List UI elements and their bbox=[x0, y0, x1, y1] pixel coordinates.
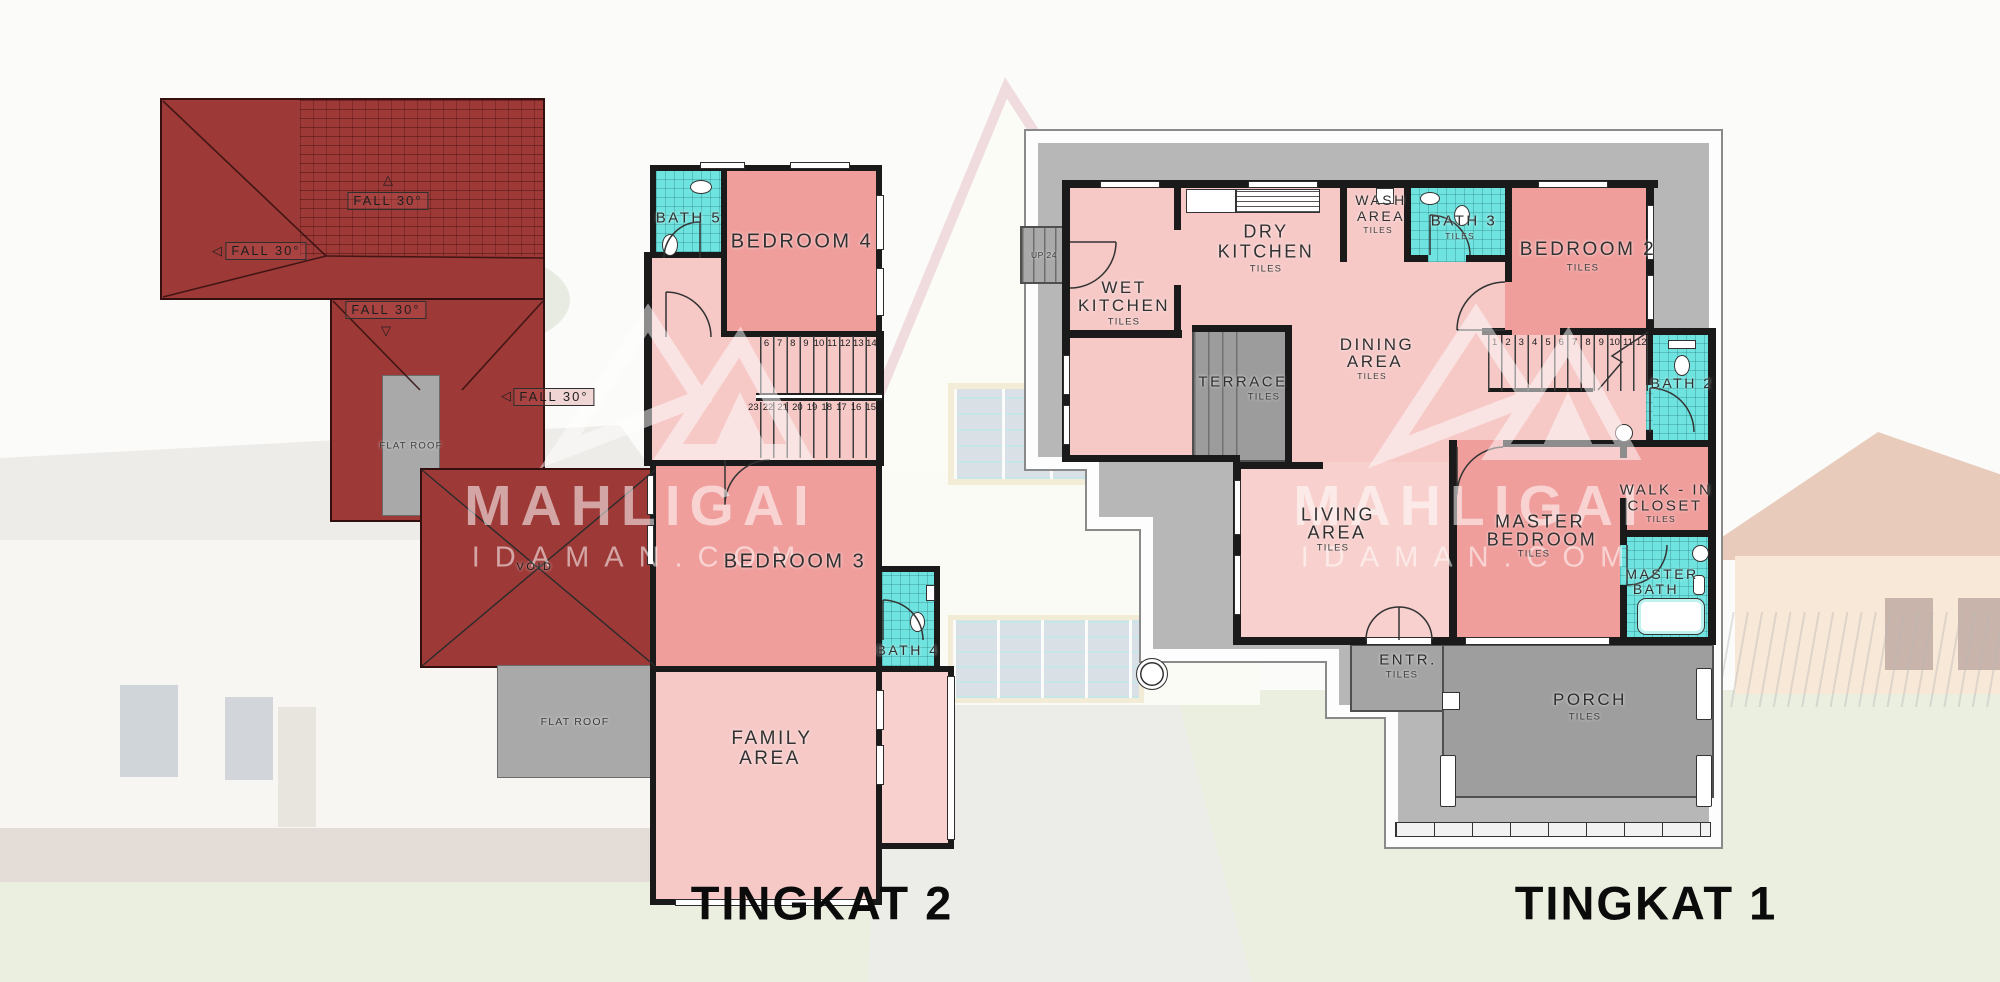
door-gap bbox=[1457, 440, 1503, 447]
entrance-label: ENTR. bbox=[1379, 652, 1437, 669]
living-label-line2: AREA bbox=[1307, 523, 1366, 544]
stair-numbers-bottom: 232221201918171615 bbox=[746, 402, 878, 415]
window bbox=[1063, 405, 1070, 445]
dry-kitchen-label-line1: DRY bbox=[1243, 222, 1288, 243]
porch-label: PORCH bbox=[1553, 690, 1627, 710]
stair-number: 23 bbox=[746, 402, 761, 415]
window bbox=[947, 676, 955, 840]
roof-fall-label: FALL 30° bbox=[225, 242, 306, 260]
bath3-label: BATH 3 bbox=[1431, 213, 1497, 230]
walkin-closet-label-line1: WALK - IN bbox=[1620, 482, 1713, 499]
window bbox=[1538, 181, 1608, 188]
window bbox=[876, 268, 884, 316]
hall-upper-floor2 bbox=[650, 252, 727, 466]
stair-number: 14 bbox=[865, 338, 878, 351]
toilet-icon bbox=[1674, 355, 1690, 376]
window bbox=[1465, 637, 1610, 645]
porch-column bbox=[1696, 668, 1712, 720]
cistern-icon bbox=[1668, 340, 1696, 349]
left-house-door bbox=[278, 707, 316, 827]
stair-number: 10 bbox=[1608, 337, 1621, 350]
roof-fall-label: FALL 30° bbox=[347, 192, 428, 210]
entry-door-gap bbox=[1366, 637, 1432, 645]
walkway-bricks bbox=[1395, 822, 1711, 837]
door-gap bbox=[1505, 282, 1512, 330]
stair-numbers-floor1: 123456789101112 bbox=[1488, 337, 1648, 350]
stair-number: 11 bbox=[1621, 337, 1634, 350]
wash-area-label-line1: WASH bbox=[1355, 192, 1406, 208]
family-area-label-line2: AREA bbox=[739, 748, 801, 770]
stair-number: 20 bbox=[790, 402, 805, 415]
sink-icon bbox=[1692, 545, 1709, 562]
stair-number: 9 bbox=[1595, 337, 1608, 350]
toilet-icon bbox=[662, 234, 678, 256]
fence bbox=[1690, 612, 2000, 707]
stair-number: 16 bbox=[849, 402, 864, 415]
bath4-label: BATH 4 bbox=[877, 642, 940, 658]
stair-number: 18 bbox=[819, 402, 834, 415]
wall bbox=[1062, 180, 1070, 338]
door-gap bbox=[1512, 328, 1560, 335]
stair-number: 12 bbox=[1635, 337, 1648, 350]
wall bbox=[1062, 455, 1240, 462]
door-gap bbox=[876, 745, 884, 785]
dry-kitchen-label-line2: KITCHEN bbox=[1218, 242, 1315, 263]
floor2-title: TINGKAT 2 bbox=[691, 876, 954, 931]
stair-number: 13 bbox=[852, 338, 865, 351]
window bbox=[1248, 181, 1318, 188]
bedroom4-label: BEDROOM 4 bbox=[731, 231, 874, 254]
window bbox=[1234, 480, 1241, 535]
stair-number: 8 bbox=[1581, 337, 1594, 350]
stair-number: 7 bbox=[1568, 337, 1581, 350]
up-steps-label: UP 24 bbox=[1031, 250, 1057, 260]
wet-kitchen-label-line1: WET bbox=[1101, 278, 1146, 298]
stair-number: 1 bbox=[1488, 337, 1501, 350]
room-balcony bbox=[876, 666, 954, 849]
wall bbox=[1340, 188, 1347, 262]
left-house-window bbox=[225, 697, 273, 780]
tiles-label: TILES bbox=[1108, 317, 1140, 328]
porch-column bbox=[1442, 692, 1460, 710]
door-gap bbox=[1428, 255, 1466, 262]
terrace-label: TERRACE bbox=[1198, 374, 1287, 391]
stair-number: 6 bbox=[1555, 337, 1568, 350]
toilet-icon bbox=[910, 612, 925, 632]
watermark-brand: MAHLIGAI bbox=[464, 473, 818, 539]
window bbox=[790, 162, 850, 169]
window bbox=[700, 162, 745, 169]
porch-column bbox=[1696, 755, 1712, 807]
tiles-label: TILES bbox=[1357, 371, 1387, 381]
stair-number: 5 bbox=[1541, 337, 1554, 350]
walkin-closet-label-line2: CLOSET bbox=[1627, 498, 1702, 515]
wall bbox=[1233, 462, 1323, 469]
tiles-label: TILES bbox=[1363, 225, 1393, 235]
roof-fall-label: FALL 30° bbox=[345, 301, 426, 319]
window bbox=[1100, 181, 1160, 188]
master-bedroom-label-line2: BEDROOM bbox=[1487, 530, 1598, 551]
bath5-label: BATH 5 bbox=[656, 210, 722, 227]
stair-number: 2 bbox=[1501, 337, 1514, 350]
tiles-label: TILES bbox=[1518, 549, 1550, 560]
center-lower-window bbox=[948, 615, 1144, 703]
floor1-title: TINGKAT 1 bbox=[1515, 876, 1778, 931]
window bbox=[1647, 275, 1654, 320]
dining-label-line2: AREA bbox=[1347, 352, 1403, 372]
wall bbox=[1285, 325, 1292, 465]
bedroom2-label: BEDROOM 2 bbox=[1520, 239, 1657, 261]
family-area-label-line1: FAMILY bbox=[731, 728, 812, 750]
tiles-label: TILES bbox=[1386, 670, 1418, 681]
arrow-left-icon: ◁ bbox=[212, 243, 222, 259]
bath2-label: BATH 2 bbox=[1651, 375, 1714, 391]
tiles-label: TILES bbox=[1567, 263, 1599, 274]
stair-rail bbox=[756, 393, 882, 401]
stair-number: 12 bbox=[839, 338, 852, 351]
stair-number: 6 bbox=[760, 338, 773, 351]
tiles-label: TILES bbox=[1250, 264, 1282, 275]
window bbox=[1063, 355, 1070, 395]
bathtub-icon bbox=[1637, 598, 1705, 635]
kitchen-counter-icon bbox=[1236, 189, 1320, 213]
stair-number: 22 bbox=[761, 402, 776, 415]
tiles-label: TILES bbox=[1248, 392, 1280, 403]
sink-icon bbox=[926, 585, 935, 601]
stair-number: 4 bbox=[1528, 337, 1541, 350]
arrow-down-icon: ▽ bbox=[381, 323, 391, 339]
tiles-label: TILES bbox=[1569, 712, 1601, 723]
master-bath-label-line2: BATH bbox=[1633, 581, 1679, 597]
tiles-label: TILES bbox=[1445, 231, 1475, 241]
wall bbox=[1620, 440, 1716, 447]
roof-fall-label: FALL 30° bbox=[513, 388, 594, 406]
stair-number: 17 bbox=[834, 402, 849, 415]
stair-number: 10 bbox=[812, 338, 825, 351]
sink-icon bbox=[690, 180, 712, 194]
wall bbox=[644, 252, 652, 466]
wash-area-label-line2: AREA bbox=[1357, 208, 1405, 224]
tiles-label: TILES bbox=[1317, 543, 1349, 554]
bedroom3-label: BEDROOM 3 bbox=[724, 551, 867, 574]
tiles-label: TILES bbox=[1646, 514, 1676, 524]
door-gap bbox=[1174, 230, 1181, 285]
door-gap bbox=[1646, 385, 1653, 430]
roof-shingles bbox=[300, 100, 543, 256]
basin-icon bbox=[1615, 424, 1633, 442]
wall bbox=[1192, 325, 1292, 332]
sink-icon bbox=[1420, 192, 1440, 205]
column-circle bbox=[1136, 658, 1168, 690]
door-gap bbox=[876, 690, 884, 730]
void-label: VOID bbox=[517, 561, 554, 573]
wall bbox=[1062, 330, 1182, 338]
stair-number: 15 bbox=[863, 402, 878, 415]
arrow-left-icon: ◁ bbox=[501, 388, 511, 404]
stair-number: 21 bbox=[775, 402, 790, 415]
stair-number: 19 bbox=[805, 402, 820, 415]
floorplan-poster: 67891011121314 232221201918171615 bbox=[0, 0, 2000, 982]
room-family-area bbox=[650, 666, 882, 905]
stair-number: 9 bbox=[799, 338, 812, 351]
stair-number: 8 bbox=[786, 338, 799, 351]
left-house-window bbox=[120, 685, 178, 777]
flat-roof-label: FLAT ROOF bbox=[379, 441, 442, 452]
master-bath-label-line1: MASTER bbox=[1625, 566, 1698, 582]
window bbox=[876, 195, 884, 250]
wet-kitchen-label-line2: KITCHEN bbox=[1078, 296, 1170, 316]
arrow-up-icon: △ bbox=[383, 172, 393, 188]
window bbox=[1234, 555, 1241, 615]
flat-roof-label: FLAT ROOF bbox=[541, 716, 610, 728]
kitchen-sink-icon bbox=[1186, 189, 1236, 213]
porch-column bbox=[1440, 755, 1456, 807]
stair-number: 3 bbox=[1515, 337, 1528, 350]
stair-numbers-top: 67891011121314 bbox=[760, 338, 878, 351]
stair-number: 11 bbox=[826, 338, 839, 351]
stair-number: 7 bbox=[773, 338, 786, 351]
